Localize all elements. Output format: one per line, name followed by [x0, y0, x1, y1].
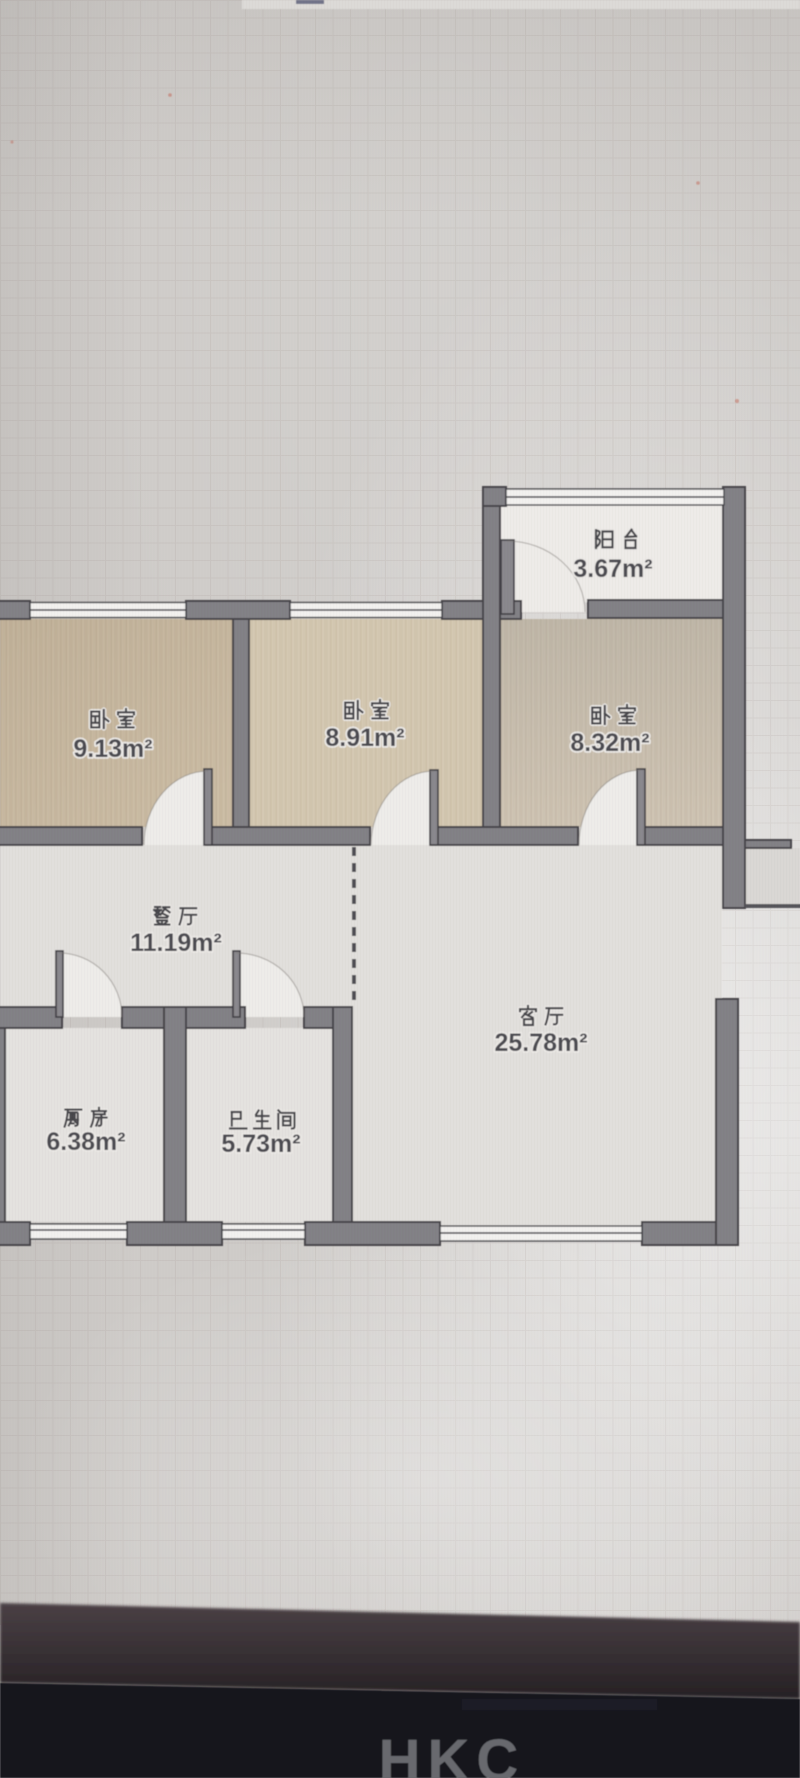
svg-text:HKC: HKC [379, 1728, 526, 1778]
